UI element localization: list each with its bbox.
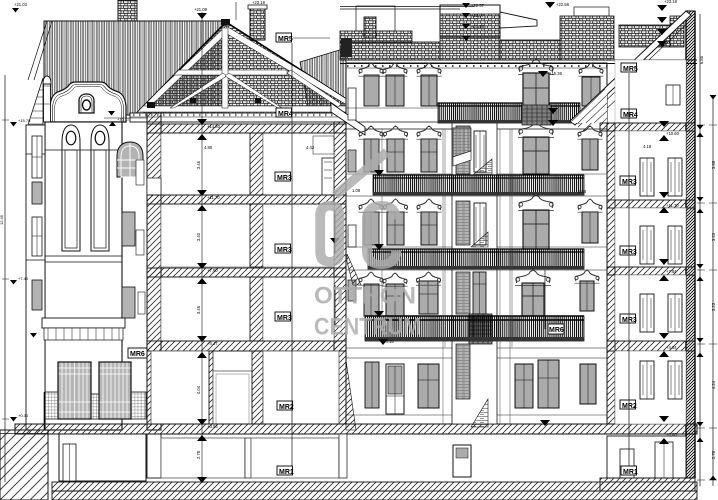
svg-text:+23.18: +23.18 [664,0,678,4]
svg-text:+23.18: +23.18 [252,0,266,5]
svg-text:MR4: MR4 [623,112,638,119]
svg-text:MR6: MR6 [549,327,564,334]
svg-text:4.80: 4.80 [204,145,213,150]
svg-text:+22.57: +22.57 [471,3,485,8]
svg-text:+15.36: +15.36 [549,71,563,76]
svg-text:MR5: MR5 [623,66,638,73]
svg-text:1.08: 1.08 [578,189,587,194]
svg-text:+21.03: +21.03 [14,2,28,7]
svg-text:+16.11: +16.11 [117,117,130,122]
svg-text:3.23: 3.23 [711,232,716,241]
svg-text:+7.84: +7.84 [666,269,677,274]
svg-text:+10.60: +10.60 [666,131,680,136]
svg-text:4.18: 4.18 [643,144,652,149]
svg-text:3.46: 3.46 [196,160,201,169]
svg-text:+22.07: +22.07 [471,13,485,18]
svg-text:3.23: 3.23 [711,302,716,311]
svg-text:+4.47: +4.47 [207,341,218,346]
svg-text:+11.70: +11.70 [207,195,220,200]
svg-text:+21.09: +21.09 [194,7,208,12]
svg-text:1.08: 1.08 [352,188,361,193]
svg-text:MR1: MR1 [623,469,638,476]
svg-text:+0.30: +0.30 [18,413,29,418]
svg-text:3.46: 3.46 [196,305,201,314]
svg-text:2.78: 2.78 [711,450,716,459]
svg-text:MR3: MR3 [622,179,637,186]
svg-text:+7.40: +7.40 [18,276,29,281]
svg-text:MR5: MR5 [278,36,293,43]
svg-text:4.42: 4.42 [306,145,315,150]
svg-text:MR3: MR3 [277,315,292,322]
svg-text:CENTRUM: CENTRUM [314,313,421,340]
svg-text:+15.78: +15.78 [18,118,31,123]
svg-text:MR3: MR3 [622,317,637,324]
svg-text:2.78: 2.78 [196,450,201,459]
svg-text:+11.70: +11.70 [666,203,679,208]
svg-text:3.58: 3.58 [711,160,716,169]
svg-text:4.04: 4.04 [196,385,201,394]
svg-text:+7.90: +7.90 [207,268,218,273]
svg-text:+0.60: +0.60 [666,432,677,437]
svg-text:+22.58: +22.58 [556,2,570,7]
svg-text:OTTHON: OTTHON [314,283,416,310]
svg-text:MR3: MR3 [277,247,292,254]
svg-text:6.85: 6.85 [699,55,704,64]
svg-text:+0.56: +0.56 [207,424,218,429]
svg-text:MR2: MR2 [622,403,637,410]
svg-text:+4.04: +4.04 [666,345,677,350]
svg-text:12.45: 12.45 [0,214,4,225]
svg-text:+14.80: +14.80 [207,124,221,129]
svg-text:+21.58: +21.58 [471,24,485,29]
svg-text:4.24: 4.24 [711,380,716,389]
svg-text:MR4: MR4 [278,111,293,118]
svg-text:MR6: MR6 [130,351,145,358]
svg-text:MR3: MR3 [622,249,637,256]
svg-text:3.40: 3.40 [196,232,201,241]
svg-text:MR1: MR1 [279,469,294,476]
svg-text:MR3: MR3 [277,175,292,182]
